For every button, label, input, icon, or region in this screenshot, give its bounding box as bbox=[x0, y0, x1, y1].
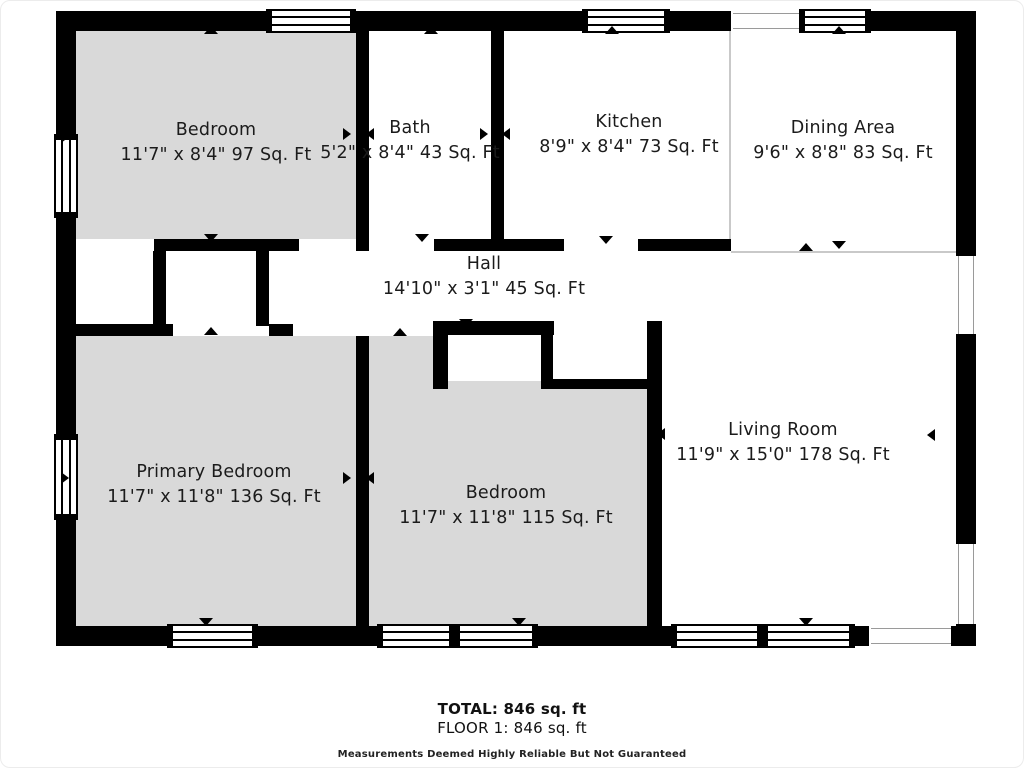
wall-opening bbox=[958, 544, 974, 624]
room-name: Hall bbox=[383, 252, 585, 277]
floor-area-text: FLOOR 1: 846 sq. ft bbox=[1, 719, 1023, 737]
room-dimensions: 11'7" x 8'4" 97 Sq. Ft bbox=[121, 143, 312, 168]
wall bbox=[433, 321, 554, 335]
room-dimensions: 11'9" x 15'0" 178 Sq. Ft bbox=[676, 443, 890, 468]
wall bbox=[951, 626, 976, 646]
disclaimer-text: Measurements Deemed Highly Reliable But … bbox=[1, 749, 1023, 760]
opening-marker-icon bbox=[927, 429, 935, 441]
room-hall-label: Hall14'10" x 3'1" 45 Sq. Ft bbox=[383, 252, 585, 302]
room-name: Kitchen bbox=[539, 110, 719, 135]
wall bbox=[354, 11, 584, 31]
opening-marker-icon bbox=[459, 319, 473, 327]
opening-marker-icon bbox=[832, 241, 846, 249]
opening-marker-icon bbox=[605, 26, 619, 34]
floorplan-page: Bedroom11'7" x 8'4" 97 Sq. FtBath5'2" x … bbox=[0, 0, 1024, 768]
window bbox=[582, 9, 670, 33]
wall bbox=[256, 626, 379, 646]
room-dimensions: 14'10" x 3'1" 45 Sq. Ft bbox=[383, 277, 585, 302]
wall bbox=[668, 11, 731, 31]
wall bbox=[541, 379, 658, 389]
window bbox=[54, 134, 78, 218]
wall bbox=[638, 239, 731, 251]
room-dining-area-label: Dining Area9'6" x 8'8" 83 Sq. Ft bbox=[753, 116, 933, 166]
wall-opening bbox=[733, 13, 799, 29]
room-bedroom-top-label: Bedroom11'7" x 8'4" 97 Sq. Ft bbox=[121, 118, 312, 168]
wall bbox=[434, 239, 564, 251]
room-name: Bedroom bbox=[399, 481, 613, 506]
opening-marker-icon bbox=[512, 618, 526, 626]
floorplan-canvas: Bedroom11'7" x 8'4" 97 Sq. FtBath5'2" x … bbox=[1, 1, 1024, 768]
opening-marker-icon bbox=[799, 243, 813, 251]
opening-marker-icon bbox=[61, 472, 69, 484]
opening-marker-icon bbox=[502, 128, 510, 140]
room-dimensions: 8'9" x 8'4" 73 Sq. Ft bbox=[539, 135, 719, 160]
room-bedroom-middle-label: Bedroom11'7" x 11'8" 115 Sq. Ft bbox=[399, 481, 613, 531]
opening-marker-icon bbox=[657, 428, 665, 440]
opening-marker-icon bbox=[599, 236, 613, 244]
window bbox=[671, 624, 763, 648]
opening-marker-icon bbox=[204, 234, 218, 242]
room-name: Dining Area bbox=[753, 116, 933, 141]
wall bbox=[269, 324, 293, 336]
room-dimensions: 9'6" x 8'8" 83 Sq. Ft bbox=[753, 141, 933, 166]
wall bbox=[647, 321, 662, 626]
room-primary-bedroom-label: Primary Bedroom11'7" x 11'8" 136 Sq. Ft bbox=[107, 460, 321, 510]
closet-patch bbox=[448, 335, 541, 381]
wall-opening bbox=[871, 628, 951, 644]
opening-marker-icon bbox=[393, 328, 407, 336]
opening-marker-icon bbox=[366, 472, 374, 484]
room-bath-label: Bath5'2" x 8'4" 43 Sq. Ft bbox=[320, 116, 500, 166]
window bbox=[454, 624, 538, 648]
room-dimensions: 11'7" x 11'8" 115 Sq. Ft bbox=[399, 506, 613, 531]
opening-marker-icon bbox=[199, 618, 213, 626]
opening-marker-icon bbox=[343, 472, 351, 484]
opening-marker-icon bbox=[204, 26, 218, 34]
room-boundary-line bbox=[731, 251, 958, 253]
room-name: Bath bbox=[320, 116, 500, 141]
wall bbox=[956, 11, 976, 256]
wall bbox=[536, 626, 673, 646]
wall bbox=[56, 11, 268, 31]
opening-marker-icon bbox=[799, 618, 813, 626]
wall bbox=[956, 334, 976, 544]
room-name: Primary Bedroom bbox=[107, 460, 321, 485]
wall bbox=[256, 251, 269, 326]
opening-marker-icon bbox=[415, 234, 429, 242]
room-dimensions: 11'7" x 11'8" 136 Sq. Ft bbox=[107, 485, 321, 510]
opening-marker-icon bbox=[424, 26, 438, 34]
window bbox=[167, 624, 258, 648]
closet-patch bbox=[553, 335, 647, 381]
wall bbox=[56, 11, 76, 136]
wall bbox=[56, 626, 169, 646]
window bbox=[266, 9, 356, 33]
wall-opening bbox=[958, 256, 974, 334]
window bbox=[377, 624, 455, 648]
wall bbox=[853, 626, 869, 646]
room-kitchen-label: Kitchen8'9" x 8'4" 73 Sq. Ft bbox=[539, 110, 719, 160]
footer: TOTAL: 846 sq. ft FLOOR 1: 846 sq. ft Me… bbox=[1, 700, 1023, 760]
room-name: Living Room bbox=[676, 418, 890, 443]
wall bbox=[433, 379, 448, 389]
wall bbox=[56, 239, 76, 251]
wall bbox=[154, 239, 299, 251]
opening-marker-icon bbox=[61, 131, 69, 143]
room-boundary-line bbox=[729, 31, 731, 239]
room-living-room-label: Living Room11'9" x 15'0" 178 Sq. Ft bbox=[676, 418, 890, 468]
room-dimensions: 5'2" x 8'4" 43 Sq. Ft bbox=[320, 141, 500, 166]
window bbox=[762, 624, 855, 648]
room-name: Bedroom bbox=[121, 118, 312, 143]
opening-marker-icon bbox=[832, 26, 846, 34]
opening-marker-icon bbox=[204, 327, 218, 335]
wall bbox=[76, 324, 173, 336]
total-area-text: TOTAL: 846 sq. ft bbox=[1, 700, 1023, 718]
